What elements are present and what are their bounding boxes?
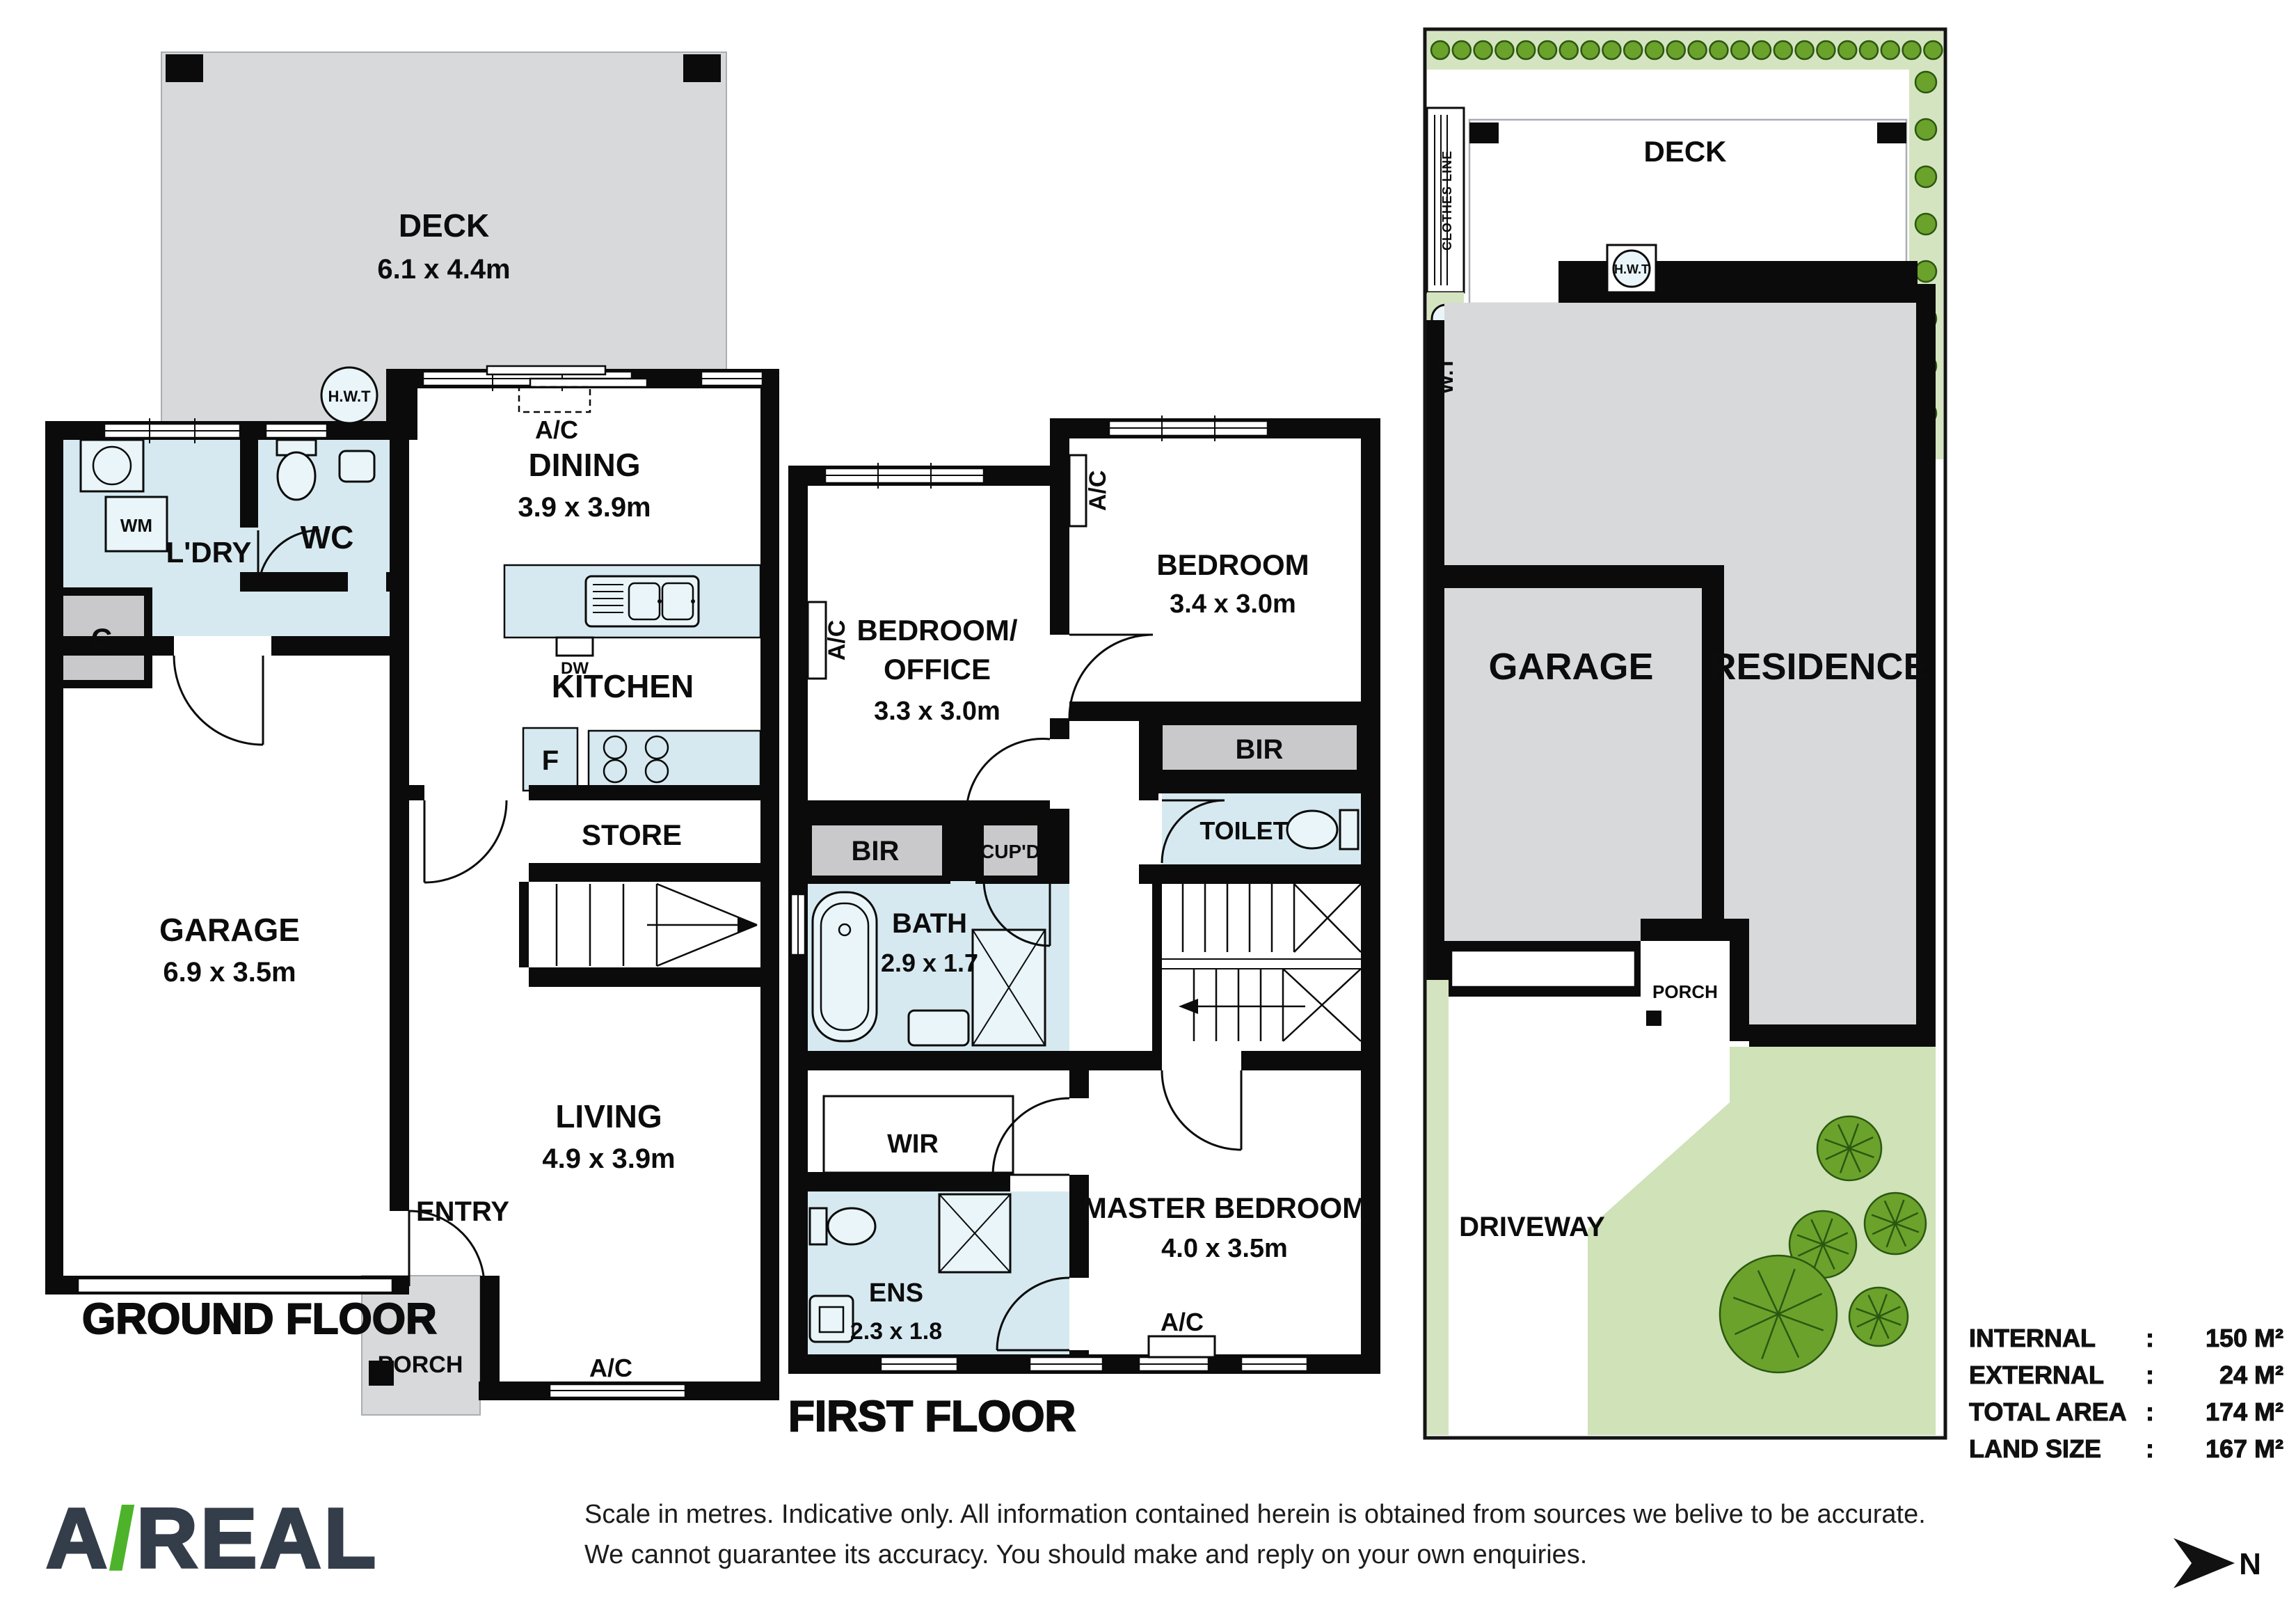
entry-label: ENTRY — [416, 1196, 509, 1227]
cupd-label: CUP'D — [980, 841, 1040, 862]
ac-unit-bottom — [1149, 1336, 1215, 1357]
first-floor-title: FIRST FLOOR — [788, 1393, 1076, 1441]
deck-dims: 6.1 x 4.4m — [377, 254, 510, 285]
disclaimer-line1: Scale in metres. Indicative only. All in… — [584, 1500, 1926, 1529]
summary-label: LAND SIZE — [1969, 1434, 2101, 1463]
bir-left-label: BIR — [852, 836, 900, 866]
site-garage-label: GARAGE — [1488, 646, 1653, 688]
summary-value: 150 M² — [2206, 1324, 2283, 1352]
wc-label: WC — [301, 519, 354, 555]
floorplan-page: H.W.T DECK 6.1 x 4.4m WM L'DRY WC C A/C … — [0, 0, 2296, 1623]
dining-label: DINING — [529, 447, 641, 483]
porch-label: PORCH — [378, 1352, 463, 1378]
site-deck-label: DECK — [1643, 135, 1726, 168]
floorplan-canvas: H.W.T DECK 6.1 x 4.4m WM L'DRY WC C A/C … — [0, 0, 2296, 1623]
clothes-line-label: CLOTHES LINE — [1440, 150, 1454, 251]
svg-text::: : — [2146, 1361, 2154, 1389]
site-porch-label: PORCH — [1652, 981, 1718, 1002]
summary-label: TOTAL AREA — [1969, 1398, 2127, 1426]
site-residence-label: RESIDENCE — [1709, 646, 1928, 688]
wc-basin — [340, 451, 374, 482]
ac-top-label: A/C — [535, 415, 578, 444]
summary-value: 174 M² — [2206, 1398, 2283, 1426]
north-label: N — [2239, 1547, 2261, 1581]
brand-logo: A/REAL — [46, 1491, 378, 1585]
ground-floor-title: GROUND FLOOR — [82, 1295, 437, 1343]
ens-vanity — [810, 1296, 853, 1342]
sliding-door-rail — [530, 379, 647, 387]
store-label: STORE — [582, 818, 682, 851]
bath-vanity — [909, 1011, 968, 1045]
living-label: LIVING — [555, 1098, 662, 1134]
bath-shower — [973, 930, 1045, 1045]
bir-right-label: BIR — [1236, 734, 1284, 765]
kitchen-sink — [586, 576, 699, 626]
bedroom-office-dims: 3.3 x 3.0m — [874, 697, 1000, 726]
svg-text::: : — [2146, 1324, 2154, 1352]
disclaimer-line2: We cannot guarantee its accuracy. You sh… — [584, 1540, 1587, 1569]
north-arrow-icon: N — [2174, 1538, 2261, 1588]
summary-value: 167 M² — [2206, 1434, 2283, 1463]
laundry-tub — [81, 440, 143, 491]
logo-slash-icon: / — [110, 1491, 136, 1585]
wir-label: WIR — [887, 1130, 939, 1159]
ens-shower — [939, 1194, 1010, 1272]
fridge-label: F — [542, 745, 559, 776]
site-plan: CLOTHES LINE W.T DECK H.W.T GARAGE RESID… — [1425, 29, 1945, 1438]
stair-direction-arrow — [1179, 999, 1198, 1014]
ac-unit-right — [1069, 455, 1086, 526]
site-garage-door — [1451, 951, 1635, 987]
toilet-fixture — [1287, 810, 1358, 849]
dishwasher — [557, 638, 593, 656]
ac-bottom-label: A/C — [589, 1354, 632, 1382]
living-dims: 4.9 x 3.9m — [542, 1143, 675, 1174]
site-driveway-label: DRIVEWAY — [1459, 1212, 1605, 1242]
kitchen-label: KITCHEN — [552, 668, 694, 704]
ens-label: ENS — [869, 1278, 923, 1308]
ground-floor-plan: H.W.T DECK 6.1 x 4.4m WM L'DRY WC C A/C … — [45, 52, 779, 1415]
sliding-door-rail — [487, 366, 605, 374]
ac-right-label: A/C — [1085, 470, 1111, 512]
bath-label: BATH — [892, 908, 967, 939]
bedroom-office-label1: BEDROOM/ — [857, 614, 1018, 647]
ac-left-label: A/C — [824, 620, 850, 661]
laundry-label: L'DRY — [166, 536, 252, 569]
garage-dims: 6.9 x 3.5m — [163, 957, 296, 988]
cooktop-counter — [589, 731, 760, 786]
toilet-label: TOILET — [1199, 816, 1288, 845]
wc-toilet — [277, 440, 316, 500]
garage-label: GARAGE — [159, 912, 300, 948]
wm-label: WM — [120, 515, 152, 536]
master-bedroom-dims: 4.0 x 3.5m — [1161, 1234, 1288, 1263]
ens-dims: 2.3 x 1.8 — [850, 1318, 942, 1345]
bathtub — [813, 892, 877, 1041]
area-summary: INTERNAL : 150 M² EXTERNAL : 24 M² TOTAL… — [1969, 1324, 2283, 1463]
svg-text::: : — [2146, 1434, 2154, 1463]
dining-dims: 3.9 x 3.9m — [518, 492, 651, 523]
bath-dims: 2.9 x 1.7 — [881, 949, 978, 977]
deck-label: DECK — [399, 207, 489, 244]
garage-door — [78, 1278, 392, 1292]
bedroom-label: BEDROOM — [1156, 548, 1309, 581]
summary-label: INTERNAL — [1969, 1324, 2096, 1352]
master-bedroom-label: MASTER BEDROOM — [1083, 1191, 1366, 1224]
svg-text::: : — [2146, 1398, 2154, 1426]
first-floor-stairs — [1162, 884, 1361, 1041]
first-floor-plan: A/C A/C BEDROOM/ OFFICE 3.3 x 3.0m BEDRO… — [788, 415, 1380, 1441]
bedroom-office-label2: OFFICE — [884, 653, 991, 686]
wt-label: W.T — [1435, 357, 1458, 394]
summary-value: 24 M² — [2219, 1361, 2283, 1389]
summary-label: EXTERNAL — [1969, 1361, 2104, 1389]
hwt-label: H.W.T — [328, 388, 371, 405]
bedroom-dims: 3.4 x 3.0m — [1170, 589, 1296, 619]
ens-toilet — [810, 1208, 875, 1244]
site-hwt-label: H.W.T — [1614, 262, 1649, 276]
cupboard-label: C — [91, 622, 112, 655]
ac-bottom-label-ff: A/C — [1161, 1308, 1204, 1336]
